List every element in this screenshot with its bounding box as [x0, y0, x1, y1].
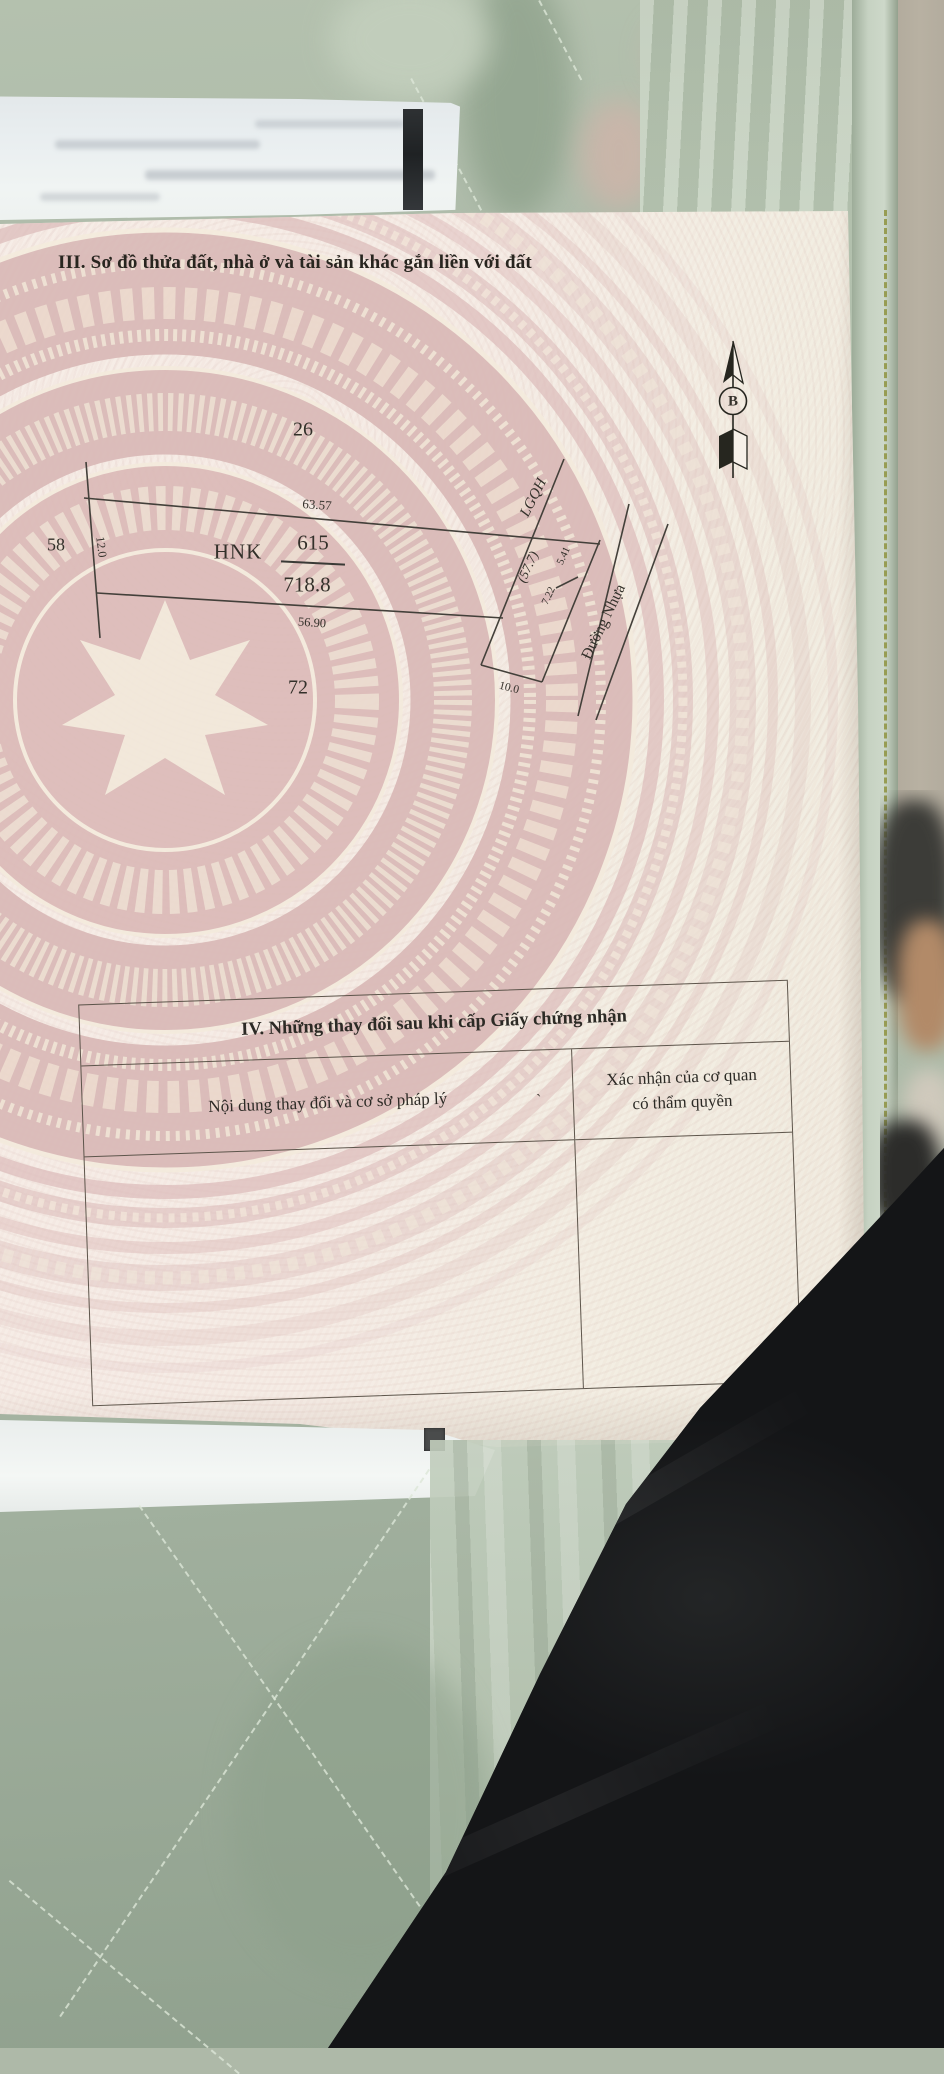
- bleedthrough-smudge: [145, 170, 435, 180]
- white-sheet-top: [0, 94, 460, 220]
- photo-of-land-certificate: { "document": { "section3_title": "III. …: [0, 0, 944, 2048]
- parcel-number: 615: [297, 531, 329, 556]
- blurred-object-right: [880, 790, 944, 1220]
- segment-tick: [556, 577, 578, 588]
- section4-column-content: Nội dung thay đổi và cơ sở pháp lý: [81, 1049, 583, 1405]
- adjacent-plot-top: 26: [293, 419, 313, 442]
- stray-pen-mark: `: [536, 1092, 541, 1110]
- bleedthrough-smudge: [255, 120, 405, 128]
- land-use-code: HNK: [214, 540, 263, 565]
- section4-column-confirmation: Xác nhận của cơ quan có thẩm quyền: [571, 1042, 801, 1388]
- parcel-area: 718.8: [283, 573, 330, 598]
- left-edge-length: 12.0: [92, 536, 109, 559]
- adjacent-plot-bottom: 72: [288, 677, 308, 700]
- col2-header-line1: Xác nhận của cơ quan: [606, 1063, 757, 1093]
- frontage-cap: [481, 665, 542, 682]
- col2-header-line2: có thẩm quyền: [632, 1089, 733, 1117]
- col1-header: Nội dung thay đổi và cơ sở pháp lý: [81, 1049, 574, 1157]
- top-edge-length: 63.57: [302, 496, 332, 514]
- bottom-edge-length: 56.90: [297, 615, 326, 632]
- col2-header: Xác nhận của cơ quan có thẩm quyền: [572, 1042, 792, 1141]
- north-letter: B: [728, 394, 738, 411]
- bleedthrough-smudge: [40, 193, 160, 201]
- skin-tone-blob: [898, 920, 944, 1050]
- adjacent-plot-left: 58: [47, 535, 65, 556]
- bleedthrough-smudge: [55, 140, 260, 149]
- black-bar-on-sheet: [403, 109, 423, 210]
- section4-table: IV. Những thay đổi sau khi cấp Giấy chứn…: [78, 980, 802, 1407]
- col1-empty-cell: [85, 1140, 583, 1405]
